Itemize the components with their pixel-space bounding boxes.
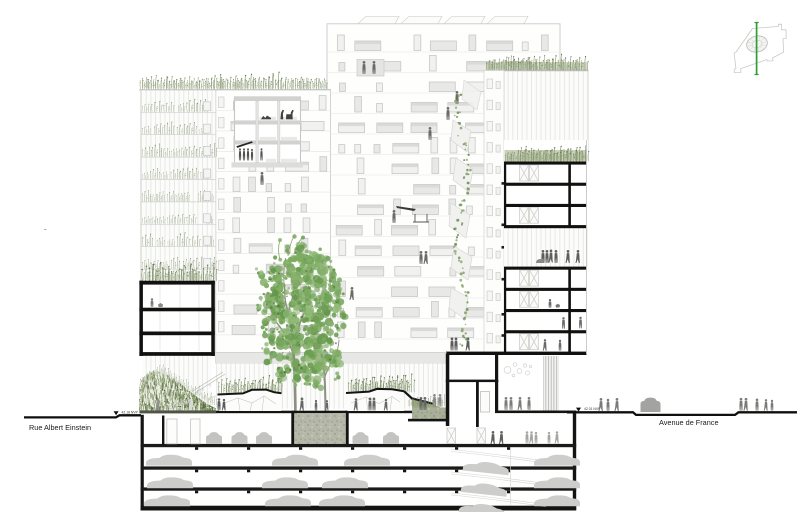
- svg-text:Avenue de France: Avenue de France: [659, 418, 719, 427]
- svg-text:Rue Albert Einstein: Rue Albert Einstein: [29, 423, 91, 432]
- svg-text:42.01 NVP: 42.01 NVP: [584, 407, 601, 411]
- svg-text:42.18 NVP: 42.18 NVP: [122, 411, 139, 415]
